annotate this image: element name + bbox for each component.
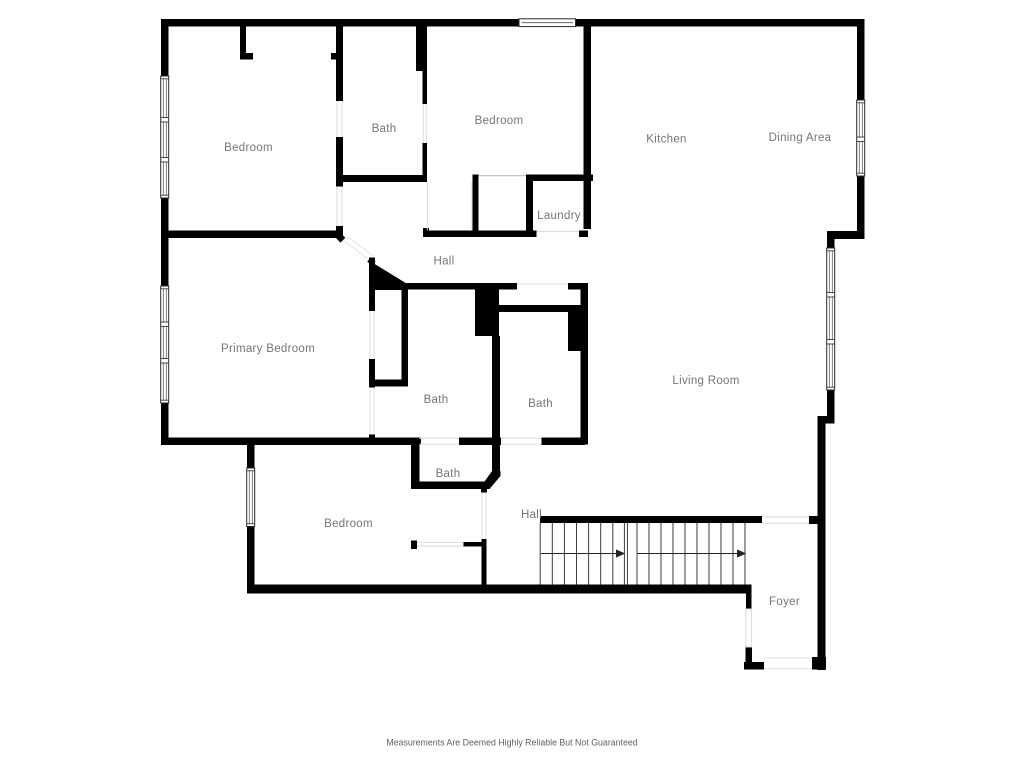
svg-text:Bedroom: Bedroom bbox=[224, 142, 273, 154]
svg-text:Bath: Bath bbox=[528, 398, 553, 410]
svg-text:Dining Area: Dining Area bbox=[769, 132, 832, 144]
svg-text:Laundry: Laundry bbox=[537, 210, 581, 222]
svg-text:Hall: Hall bbox=[433, 256, 454, 268]
svg-text:Kitchen: Kitchen bbox=[646, 134, 686, 146]
svg-text:Bath: Bath bbox=[436, 468, 461, 480]
svg-text:Bath: Bath bbox=[372, 123, 397, 135]
svg-text:Measurements Are Deemed Highly: Measurements Are Deemed Highly Reliable … bbox=[386, 738, 637, 748]
svg-text:Primary Bedroom: Primary Bedroom bbox=[221, 343, 315, 355]
svg-text:Bath: Bath bbox=[424, 394, 449, 406]
svg-text:Foyer: Foyer bbox=[769, 596, 800, 608]
svg-text:Bedroom: Bedroom bbox=[475, 115, 524, 127]
svg-text:Living Room: Living Room bbox=[672, 375, 739, 387]
svg-text:Hall: Hall bbox=[521, 509, 542, 521]
svg-text:Bedroom: Bedroom bbox=[324, 518, 373, 530]
